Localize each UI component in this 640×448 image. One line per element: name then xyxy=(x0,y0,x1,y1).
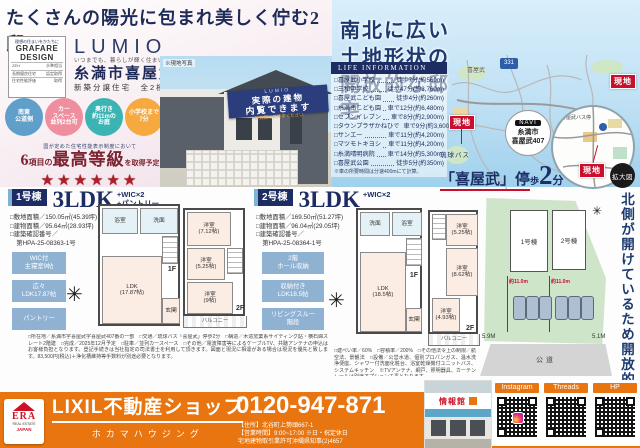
unit2-permit-number: 第HPA-25-08364-1号 xyxy=(256,240,366,249)
bus-access-note: 琉球バス 「喜屋武」停歩2分 xyxy=(440,152,560,191)
design-row3-val: 取得 xyxy=(54,78,62,85)
bus-stop-map-label: 喜屋武バス停 xyxy=(561,115,591,121)
grade-pre: 項目の xyxy=(29,158,53,167)
unit2-permit-label: □建築確認番号／ xyxy=(256,231,366,240)
car-icon xyxy=(513,296,526,320)
shop-window xyxy=(431,420,446,436)
shop-sign-accent xyxy=(469,397,477,405)
grade-post: を取得 xyxy=(125,159,146,167)
bathroom: 浴室 xyxy=(392,212,422,236)
bedroom: 洋室(7.12帖) xyxy=(187,212,231,246)
shop-photo: 情報館 xyxy=(424,380,492,448)
unit2-floorplan-2f: 洋室(5.25帖) 洋室(8.62帖) 洋室(4.93帖) xyxy=(428,210,478,334)
top-grade-banner: 国が定めた住宅性能表示制度において 6項目の最高等級を取得予定 ★★★★★★ xyxy=(14,144,166,189)
badge-line: 奥行き xyxy=(95,107,113,114)
badge-line: カー xyxy=(58,107,70,114)
entry: 玄関 xyxy=(162,298,180,324)
floor-label: 2F xyxy=(236,305,244,312)
stairs xyxy=(432,214,446,240)
unit1-floorplan-2f: 洋室(7.12帖) 洋室(5.25帖) 洋室(9帖) xyxy=(183,208,245,316)
car-icon xyxy=(555,296,568,320)
instagram-icon xyxy=(512,412,524,424)
badge-garden-depth: 奥行き 約11mの お庭 xyxy=(85,98,123,136)
fine-print-left: □所在地／糸満市字喜屋武字喜屋武407番の一部 □交通／琉球バス「喜屋武」停歩2… xyxy=(28,334,328,372)
qr-label-threads: Threads xyxy=(543,382,589,394)
map-town-label: 喜屋武 xyxy=(467,65,485,74)
design-row2-val: 認定取得 xyxy=(46,71,62,78)
shop-name: LIXIL不動産ショップ xyxy=(52,397,243,423)
floor-label: 1F xyxy=(410,272,418,279)
shop-address: 【住所】北谷町上勢頭667-1 xyxy=(238,422,428,430)
bedroom: 洋室(9帖) xyxy=(187,282,233,314)
life-info-header: LIFE INFORMATION xyxy=(331,62,447,74)
era-japan: JAPAN xyxy=(4,427,44,433)
unit1-feature-2: 広々LDK17.87帖 xyxy=(12,280,66,302)
shop-name-block: LIXIL不動産ショップ ホカマハウジング xyxy=(52,397,243,440)
bedroom: 洋室(5.25帖) xyxy=(187,248,225,280)
grafare-design-badge: 理想の住まいをかたちに GRAFARE DESIGN ZEH水準相当 長期優良住… xyxy=(8,36,66,98)
qr-threads[interactable]: Threads xyxy=(543,382,589,446)
compass-icon: ✳ xyxy=(328,288,345,313)
badge-line: 小学校まで xyxy=(129,110,159,117)
washroom: 洗面 xyxy=(360,212,390,236)
company-name: ホカマハウジング xyxy=(52,427,243,440)
shop-awning xyxy=(425,409,491,417)
lattice-screen-wall xyxy=(186,150,298,186)
bus-walk-minutes: 2 xyxy=(539,160,553,190)
qr-code-threads[interactable] xyxy=(546,397,586,437)
unit1-floorplan-1f: 浴室 洗面 LDK(17.87帖) 玄関 1F xyxy=(98,204,180,326)
site-marker-right: 現地 xyxy=(610,74,636,89)
site-marker-magnifier: 現地 xyxy=(579,163,605,178)
ldk-room: LDK(18.5帖) xyxy=(360,252,406,332)
entry: 玄関 xyxy=(406,308,422,332)
compass-icon: ✳ xyxy=(592,204,602,218)
grade-main-text: 最高等級 xyxy=(53,150,125,169)
open-house-banner: LUMIO 実際の建物 内覧できます お気軽にご見学ください xyxy=(227,85,329,119)
design-row1-val: 水準相当 xyxy=(46,63,62,70)
car-icon xyxy=(526,296,539,320)
badge-line: 公道側 xyxy=(15,117,33,124)
life-info-note: ※車の所要時間は分速400mにて計算。 xyxy=(334,168,444,176)
life-item: □タウンプラザかねひで車で9分(約3,600m) xyxy=(334,122,444,131)
navi-label: NAVI xyxy=(515,120,541,126)
stairs xyxy=(227,248,243,274)
lot1-depth-dimension: 約11.0m xyxy=(509,278,528,285)
unit1-features: WIC付主寝室9帖 広々LDK17.87帖 パントリー xyxy=(12,252,66,336)
badge-line: 南東 xyxy=(18,110,30,117)
life-item: □喜屋武小学校徒歩7分(約560m) xyxy=(334,76,444,85)
qr-hp[interactable]: HP xyxy=(592,382,638,446)
grade-number: 6 xyxy=(21,152,29,169)
public-road: 公道 xyxy=(480,344,612,376)
shop-storefront xyxy=(425,417,491,439)
life-item: □三和中学校徒歩47分(約3,760m) xyxy=(334,85,444,94)
design-box-name2: DESIGN xyxy=(11,53,63,62)
unit2-plan-suffix: +WIC×2 xyxy=(363,191,391,200)
enlarged-map-badge: 拡大図 xyxy=(610,163,635,188)
car-icon xyxy=(581,296,594,320)
lumio-logo: LUMIO xyxy=(74,36,184,58)
qr-code-hp[interactable] xyxy=(595,397,635,437)
fine-print-right: □建ぺい率／60% □容積率／200% □その他法令上の制限／航空法、景観法 □… xyxy=(334,348,476,376)
unit1-tab: 1号棟 xyxy=(8,189,47,206)
navi-address: 喜屋武407 xyxy=(506,138,550,147)
feature-badges: 南東 公道側 カー スペース 並列2台可 奥行き 約11mの お庭 小学校まで … xyxy=(5,98,165,136)
site-plan-lot2: 2号棟 xyxy=(552,210,586,270)
shop-hours: 【営業時間】9:00~17:00 ※日・祝定休日 xyxy=(238,430,428,438)
shop-photo-sky xyxy=(425,381,491,393)
unit2-floorplan-1f: 洗面 浴室 LDK(18.5帖) 玄関 1F xyxy=(356,208,422,334)
unit2-feature-2: 収納付きLDK18.5帖 xyxy=(262,280,324,302)
car-icon xyxy=(539,296,552,320)
shop-info: 【住所】北谷町上勢頭667-1 【営業時間】9:00~17:00 ※日・祝定休日… xyxy=(238,422,428,446)
badge-school-distance: 小学校まで 7分 xyxy=(125,98,163,136)
unit2-plan-type: 3LDK xyxy=(299,189,360,211)
life-item: □セブンイレブン車で8分(約2,900m) xyxy=(334,113,444,122)
unit2-specs: □敷地面積／169.50㎡(51.27坪) □建物面積／96.04㎡(29.05… xyxy=(256,214,366,248)
grade-headline: 6項目の最高等級を取得予定 xyxy=(14,150,166,173)
right-headline-line: 南北に広い xyxy=(340,18,460,45)
badge-line: 7分 xyxy=(139,117,148,124)
navi-address-circle: NAVI 糸満市 喜屋武407 xyxy=(505,110,551,156)
flyer-canvas: たくさんの陽光に包まれ美しく佇む2邸 理想の住まいをかたちに GRAFARE D… xyxy=(0,0,640,448)
unit2-building-area: □建物面積／96.04㎡(29.05坪) xyxy=(256,223,366,232)
car-icon xyxy=(568,296,581,320)
photo-caption: ※現地写真 xyxy=(163,59,195,67)
grade-post2: 予定 xyxy=(146,159,160,167)
era-logo: ERA REAL ESTATE JAPAN xyxy=(4,399,44,444)
shop-sign: 情報館 xyxy=(425,393,491,409)
road-width-left: 5.9M xyxy=(482,334,495,340)
bedroom: 洋室(5.25帖) xyxy=(446,214,478,246)
badge-line: 並列2台可 xyxy=(50,120,77,127)
site-plan-lot1: 1号棟 xyxy=(510,210,548,272)
badge-car-space: カー スペース 並列2台可 xyxy=(45,98,83,136)
compass-icon: ✳ xyxy=(66,282,83,307)
design-row1-key: ZEH xyxy=(12,63,20,70)
floor-label: 1F xyxy=(168,266,176,273)
unit2-feature-1: 2階ホール収納 xyxy=(262,252,324,274)
badge-line: お庭 xyxy=(98,120,110,127)
bus-company: 琉球バス xyxy=(440,152,560,160)
exterior-photo: LUMIO 実際の建物 内覧できます お気軽にご見学ください ※現地写真 xyxy=(160,56,332,187)
life-item: □サンエー車で11分(約4,200m) xyxy=(334,131,444,140)
bus-minutes-unit: 分 xyxy=(553,175,564,187)
unit1-feature-1: WIC付主寝室9帖 xyxy=(12,252,66,274)
qr-code-instagram[interactable] xyxy=(497,397,537,437)
bedroom: 洋室(8.62帖) xyxy=(446,248,478,296)
unit1-feature-3: パントリー xyxy=(12,308,66,330)
design-row3-key: 住宅性能評価 xyxy=(12,78,36,85)
floor-label: 2F xyxy=(466,325,474,332)
route-331-badge: 331 xyxy=(500,58,518,69)
qr-label-instagram: Instagram xyxy=(494,382,540,394)
ldk-room: LDK(17.87帖) xyxy=(102,256,162,324)
bedroom: 洋室(4.93帖) xyxy=(432,298,460,332)
life-item: □糸満南こども園車で12分(約6,480m) xyxy=(334,104,444,113)
era-name: ERA xyxy=(4,411,44,422)
lot2-depth-dimension: 約11.0m xyxy=(551,278,570,285)
unit2-land-area: □敷地面積／169.50㎡(51.27坪) xyxy=(256,214,366,223)
balcony: バルコニー xyxy=(183,316,247,328)
balcony: バルコニー xyxy=(428,334,480,346)
washroom: 洗面 xyxy=(140,208,178,234)
badge-southeast-road: 南東 公道側 xyxy=(5,98,43,136)
dimension-line xyxy=(507,276,508,332)
stairs xyxy=(406,238,422,266)
life-item: □マツモトキヨシ車で11分(約4,200m) xyxy=(334,140,444,149)
site-pointer xyxy=(461,129,462,144)
site-marker-left: 現地 xyxy=(449,115,475,130)
navi-city: 糸満市 xyxy=(506,129,550,138)
qr-label-hp: HP xyxy=(592,382,638,394)
road-width-right: 5.1M xyxy=(592,334,605,340)
life-item: □喜屋武公園徒歩5分(約350m) xyxy=(334,159,444,168)
site-plan: 1号棟 2号棟 約11.0m 約11.0m 5.9M 5.1M 公道 xyxy=(480,192,614,384)
shop-license: 宅地建物取引業許可沖縄県知事(2)4657 xyxy=(238,438,428,446)
phone-number: 0120-947-871 xyxy=(236,393,385,419)
bus-walk-label: 歩 xyxy=(530,176,539,186)
life-information-panel: LIFE INFORMATION □喜屋武小学校徒歩7分(約560m) □三和中… xyxy=(331,62,447,177)
shop-window xyxy=(450,420,465,436)
design-row2-key: 長期優良住宅 xyxy=(12,71,36,78)
life-item: □糸満晴明病院車で14分(約5,300m) xyxy=(334,150,444,159)
shop-ground xyxy=(425,439,491,448)
shop-window xyxy=(470,420,485,436)
side-vertical-note: 北側が開けているため開放的 xyxy=(616,192,636,388)
star-icon: ★ xyxy=(123,172,139,189)
qr-instagram[interactable]: Instagram xyxy=(494,382,540,446)
bathroom: 浴室 xyxy=(102,208,138,234)
bus-stop-name: 「喜屋武」停 xyxy=(440,172,530,191)
design-box-name1: GRAFARE xyxy=(11,44,63,53)
unit2-tab: 2号棟 xyxy=(254,189,293,206)
left-house-roof xyxy=(160,89,230,97)
era-house-icon xyxy=(13,402,35,411)
unit2-feature-3: リビングスルー階段 xyxy=(262,308,324,330)
qr-panel: Instagram Threads HP xyxy=(492,380,640,446)
stairs xyxy=(162,236,178,264)
unit2-features: 2階ホール収納 収納付きLDK18.5帖 リビングスルー階段 xyxy=(262,252,324,336)
life-item: □喜屋武こども園徒歩4分(約260m) xyxy=(334,94,444,103)
